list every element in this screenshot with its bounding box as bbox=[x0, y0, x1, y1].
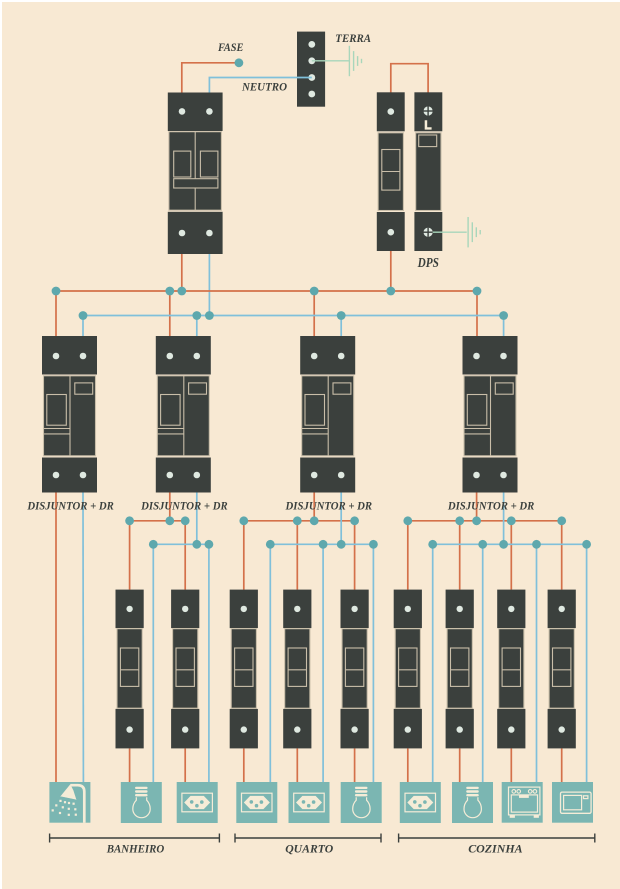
svg-text:DISJUNTOR + DR: DISJUNTOR + DR bbox=[26, 499, 113, 513]
svg-text:NEUTRO: NEUTRO bbox=[241, 80, 287, 94]
svg-text:DISJUNTOR + DR: DISJUNTOR + DR bbox=[285, 499, 372, 513]
svg-text:TERRA: TERRA bbox=[335, 31, 371, 45]
svg-text:QUARTO: QUARTO bbox=[285, 841, 333, 855]
svg-text:COZINHA: COZINHA bbox=[468, 841, 522, 855]
svg-text:DISJUNTOR + DR: DISJUNTOR + DR bbox=[447, 499, 534, 513]
svg-text:BANHEIRO: BANHEIRO bbox=[106, 841, 165, 855]
svg-text:DPS: DPS bbox=[417, 256, 439, 271]
svg-text:FASE: FASE bbox=[217, 40, 243, 54]
svg-text:DISJUNTOR + DR: DISJUNTOR + DR bbox=[140, 499, 227, 513]
